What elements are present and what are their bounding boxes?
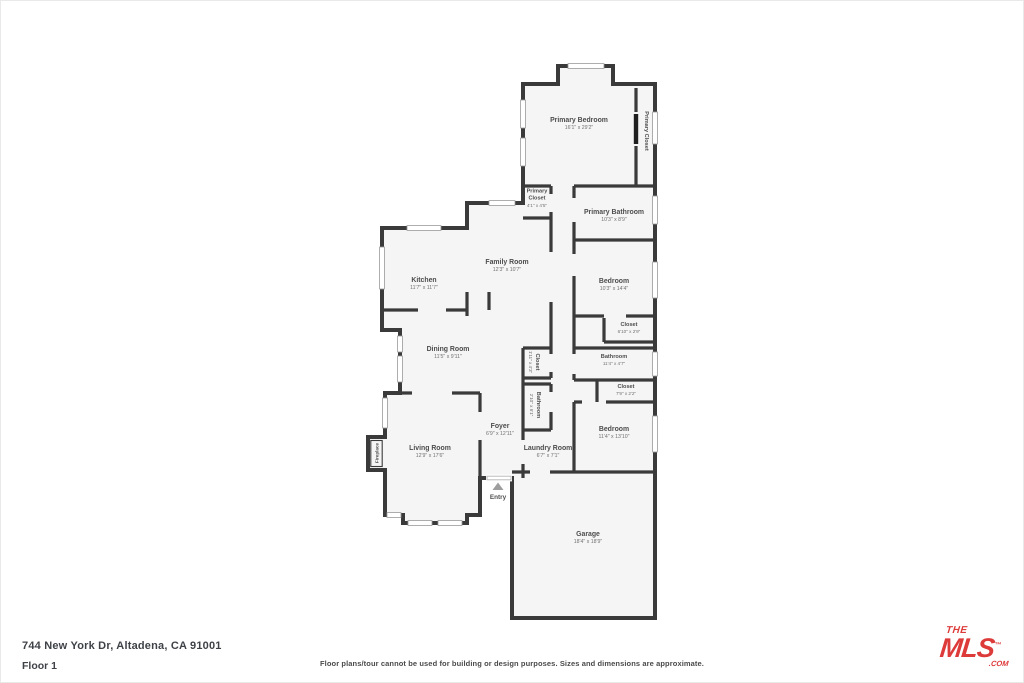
svg-text:4'1" x 4'5": 4'1" x 4'5" (527, 203, 547, 208)
svg-text:1'11" x 4'3": 1'11" x 4'3" (528, 351, 533, 374)
svg-text:Closet: Closet (620, 322, 637, 328)
entry-arrow-icon (493, 483, 504, 491)
svg-text:18'4" x 18'9": 18'4" x 18'9" (574, 539, 603, 545)
mls-logo-mls: MLS™ (939, 635, 1012, 662)
svg-text:Primary Bedroom: Primary Bedroom (550, 117, 608, 124)
svg-text:12'9" x 17'6": 12'9" x 17'6" (416, 453, 445, 459)
fireplace-label: Fireplace (375, 442, 380, 463)
svg-text:Primary Bathroom: Primary Bathroom (584, 209, 644, 216)
address: 744 New York Dr, Altadena, CA 91001 (22, 640, 222, 652)
svg-text:16'1" x 29'2": 16'1" x 29'2" (565, 125, 594, 131)
disclaimer: Floor plans/tour cannot be used for buil… (0, 659, 1024, 668)
svg-text:Bathroom: Bathroom (535, 392, 541, 418)
svg-text:11'4" x 13'10": 11'4" x 13'10" (599, 434, 630, 440)
svg-text:7'9" x 2'2": 7'9" x 2'2" (616, 391, 636, 396)
svg-text:11'4" x 4'7": 11'4" x 4'7" (603, 361, 626, 366)
svg-text:11'7" x 11'7": 11'7" x 11'7" (410, 285, 438, 291)
svg-text:Kitchen: Kitchen (411, 277, 436, 284)
svg-text:12'3" x 10'7": 12'3" x 10'7" (493, 267, 522, 273)
svg-text:10'3" x 14'4": 10'3" x 14'4" (600, 286, 629, 292)
svg-text:11'5" x 9'11": 11'5" x 9'11" (434, 354, 462, 360)
svg-text:Bathroom: Bathroom (601, 354, 627, 360)
svg-text:10'3" x 8'9": 10'3" x 8'9" (601, 217, 627, 223)
floor-plan: Entry Fireplace Primary Bedroom16'1" x 2… (0, 0, 1024, 683)
room-label: PrimaryCloset4'1" x 4'5" (527, 189, 549, 209)
svg-text:Primary: Primary (527, 189, 549, 195)
svg-text:Living Room: Living Room (409, 445, 451, 452)
svg-text:Bedroom: Bedroom (599, 278, 629, 285)
svg-text:6'7" x 7'1": 6'7" x 7'1" (537, 453, 560, 459)
room-label: Primary Closet (643, 111, 649, 151)
svg-text:Primary Closet: Primary Closet (643, 111, 649, 151)
svg-text:2'10" x 6'1": 2'10" x 6'1" (529, 394, 534, 417)
svg-text:Closet: Closet (617, 384, 634, 390)
svg-text:Bedroom: Bedroom (599, 426, 629, 433)
entry-threshold (487, 476, 511, 480)
svg-text:Foyer: Foyer (491, 423, 510, 430)
mls-logo: THE MLS™ .COM (938, 626, 1013, 672)
svg-text:Garage: Garage (576, 531, 600, 538)
svg-text:Family Room: Family Room (485, 259, 528, 266)
svg-text:Closet: Closet (534, 353, 540, 370)
mls-logo-tm: ™ (994, 642, 1002, 649)
svg-text:6'10" x 2'9": 6'10" x 2'9" (618, 329, 641, 334)
closet-door-leaf (634, 114, 638, 144)
entry-label: Entry (490, 494, 507, 501)
svg-text:Dining Room: Dining Room (427, 346, 470, 353)
svg-text:Laundry Room: Laundry Room (524, 445, 573, 452)
svg-text:6'9" x 12'11": 6'9" x 12'11" (486, 431, 514, 437)
svg-text:Closet: Closet (528, 196, 545, 202)
floor-plan-page: Entry Fireplace Primary Bedroom16'1" x 2… (0, 0, 1024, 683)
